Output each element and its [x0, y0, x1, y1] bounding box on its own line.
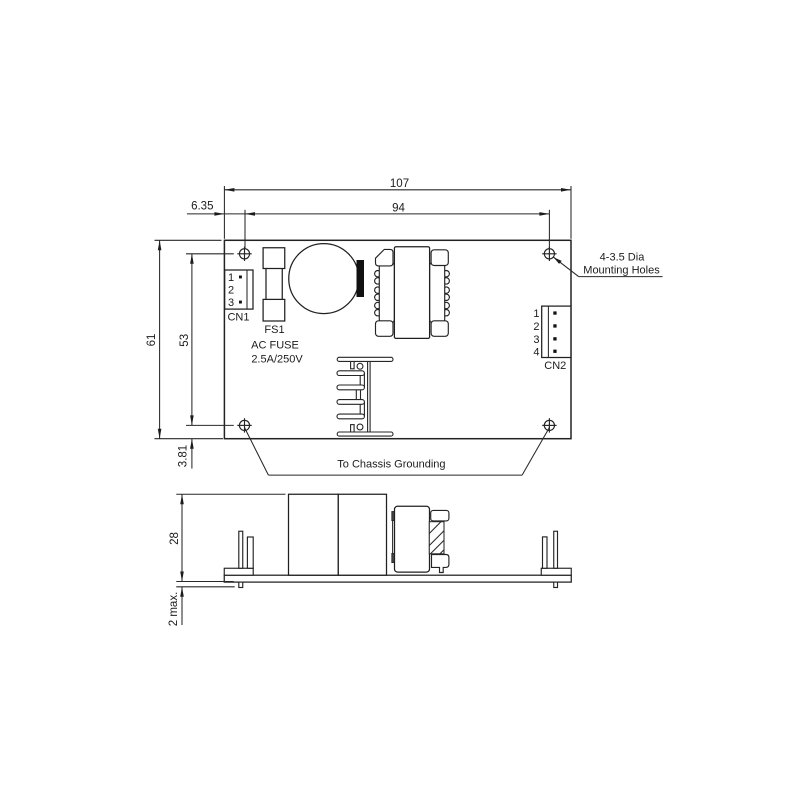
svg-text:6.35: 6.35: [191, 201, 213, 213]
svg-text:2 max.: 2 max.: [168, 592, 180, 627]
svg-text:94: 94: [392, 202, 405, 214]
svg-text:CN2: CN2: [544, 360, 566, 372]
svg-text:1: 1: [533, 308, 539, 320]
svg-text:107: 107: [390, 178, 409, 190]
svg-text:53: 53: [179, 334, 191, 347]
svg-text:28: 28: [169, 532, 181, 545]
svg-text:2: 2: [533, 321, 539, 333]
svg-text:Mounting Holes: Mounting Holes: [583, 265, 660, 277]
svg-text:3.81: 3.81: [177, 445, 189, 467]
svg-text:4-3.5 Dia: 4-3.5 Dia: [600, 252, 646, 264]
svg-text:To Chassis Grounding: To Chassis Grounding: [337, 459, 445, 471]
svg-text:CN1: CN1: [227, 311, 249, 323]
svg-text:1: 1: [228, 272, 234, 284]
svg-text:3: 3: [228, 297, 234, 309]
svg-text:3: 3: [533, 334, 539, 346]
svg-text:FS1: FS1: [264, 324, 284, 336]
svg-text:61: 61: [146, 334, 158, 347]
svg-text:2: 2: [228, 285, 234, 297]
svg-text:AC FUSE: AC FUSE: [251, 339, 299, 351]
svg-text:4: 4: [533, 346, 539, 358]
svg-text:2.5A/250V: 2.5A/250V: [251, 353, 303, 365]
